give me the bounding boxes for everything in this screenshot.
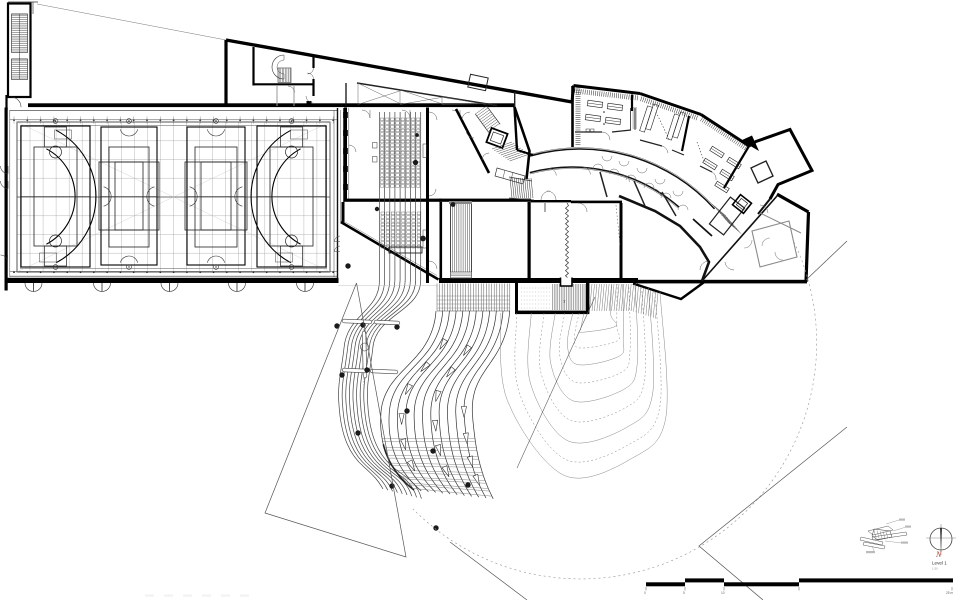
svg-text:0: 0 <box>644 591 646 595</box>
svg-text:Level 1: Level 1 <box>932 561 947 566</box>
svg-text:25 m: 25 m <box>946 591 953 595</box>
svg-text:1:50: 1:50 <box>932 567 938 571</box>
svg-text:5: 5 <box>683 591 685 595</box>
svg-text:10: 10 <box>721 591 725 595</box>
svg-text:N: N <box>935 550 942 559</box>
